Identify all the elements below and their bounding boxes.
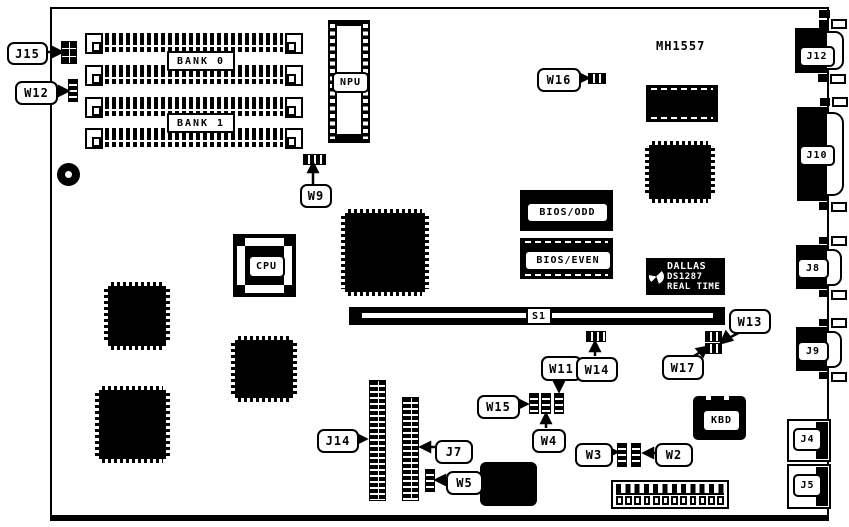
callout-w17: W17 — [662, 355, 704, 380]
callout-w2: W2 — [655, 443, 693, 467]
callout-j14: J14 — [317, 429, 359, 453]
callout-j15: J15 — [7, 42, 48, 65]
callout-w5: W5 — [446, 471, 483, 495]
callout-w14: W14 — [576, 357, 618, 382]
callout-w9: W9 — [300, 184, 332, 208]
callout-w12: W12 — [15, 81, 58, 105]
callout-w4: W4 — [532, 429, 566, 453]
motherboard-diagram: MH1557 BANK 0 BANK 1 NPU CPU — [0, 0, 849, 527]
callout-arrows — [0, 0, 849, 527]
callout-w3: W3 — [575, 443, 613, 467]
callout-w13: W13 — [729, 309, 771, 334]
callout-j7: J7 — [435, 440, 473, 464]
callout-w16: W16 — [537, 68, 581, 92]
callout-w15: W15 — [477, 395, 520, 419]
